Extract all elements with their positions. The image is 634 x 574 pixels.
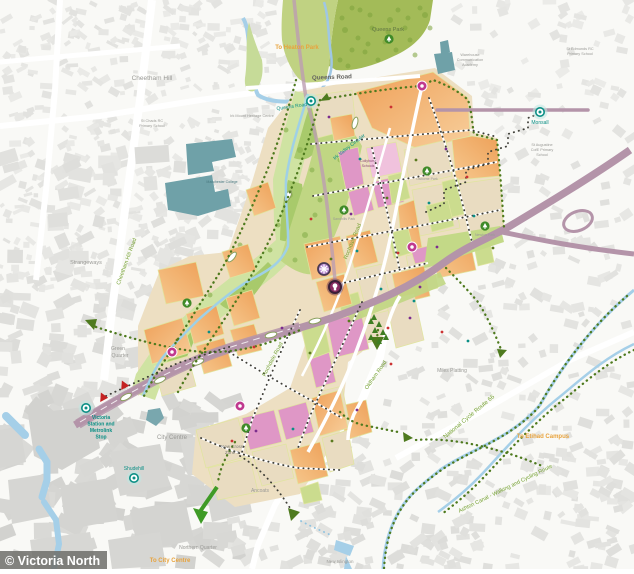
svg-text:Manchester College: Manchester College: [206, 180, 237, 184]
svg-text:St Chads RC: St Chads RC: [141, 119, 163, 123]
svg-text:Osborne Park: Osborne Park: [416, 177, 438, 181]
svg-text:Zone 3: Zone 3: [225, 450, 240, 455]
svg-text:© Victoria North: © Victoria North: [5, 554, 100, 568]
svg-text:Irk Mount Heritage Centre: Irk Mount Heritage Centre: [230, 114, 274, 118]
svg-text:Quarter: Quarter: [112, 353, 129, 359]
svg-text:Sandhills Park: Sandhills Park: [333, 217, 356, 221]
svg-text:Station and: Station and: [87, 422, 114, 428]
svg-text:City Centre: City Centre: [157, 435, 188, 441]
svg-text:Ancoats: Ancoats: [251, 488, 270, 494]
svg-text:To Heaton Park: To Heaton Park: [275, 45, 319, 51]
svg-text:New Cross: New Cross: [221, 444, 244, 449]
svg-text:Metrolink: Metrolink: [90, 428, 112, 434]
svg-text:Victoria: Victoria: [92, 415, 110, 421]
svg-text:Northern Quarter: Northern Quarter: [179, 545, 217, 551]
svg-text:Primary School: Primary School: [567, 52, 593, 56]
svg-text:Academy: Academy: [462, 63, 478, 67]
svg-text:Miles Platting: Miles Platting: [437, 368, 467, 374]
svg-text:New Islington: New Islington: [326, 559, 354, 564]
svg-text:To Etihad Campus: To Etihad Campus: [517, 434, 570, 440]
svg-text:To City Centre: To City Centre: [150, 558, 191, 564]
svg-text:Communication: Communication: [457, 58, 483, 62]
svg-text:School: School: [536, 153, 548, 157]
svg-text:CofE Primary: CofE Primary: [531, 148, 554, 152]
svg-text:Shudehill: Shudehill: [124, 466, 145, 472]
svg-text:Cheetham Hill: Cheetham Hill: [132, 75, 173, 82]
svg-text:Queens Road: Queens Road: [312, 73, 352, 81]
svg-text:Queens Park: Queens Park: [372, 27, 404, 33]
svg-text:Primary School: Primary School: [139, 124, 165, 128]
svg-text:St Edmunds RC: St Edmunds RC: [566, 47, 593, 51]
svg-text:Schools: Schools: [362, 164, 375, 168]
svg-text:Warehouse: Warehouse: [460, 53, 479, 57]
svg-text:Green: Green: [111, 346, 125, 352]
svg-text:St Augustine: St Augustine: [531, 143, 552, 147]
svg-text:Newton Park: Newton Park: [475, 233, 495, 237]
svg-text:Strangeways: Strangeways: [70, 260, 102, 266]
svg-text:Collyhurst: Collyhurst: [360, 159, 376, 163]
svg-text:Stop: Stop: [95, 435, 106, 441]
svg-text:Monsall: Monsall: [531, 120, 548, 126]
